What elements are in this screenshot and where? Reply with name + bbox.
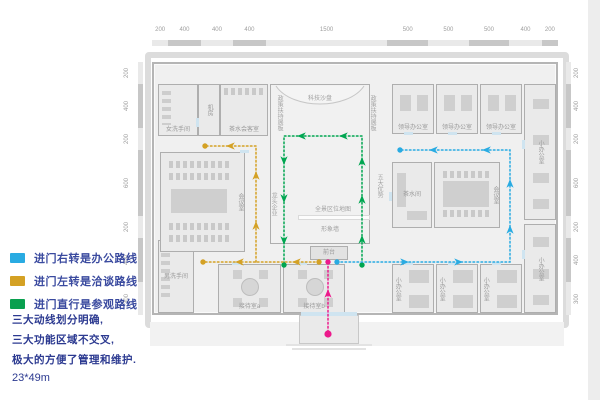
ruler-left-segment [138, 62, 143, 84]
room-label: 茶水会客室 [229, 127, 259, 133]
room-label: 茶水间 [403, 192, 421, 198]
ruler-right-label: 300 [574, 293, 580, 303]
plan-text-policy-board-right: 政策扶持展板 [369, 95, 375, 131]
room-label: 小办公室 [438, 277, 444, 301]
room-meeting-room-left: 会议室 [160, 152, 245, 252]
ruler-top-label: 500 [443, 27, 453, 33]
room-exhibition-hall [270, 84, 370, 244]
room-small-office-strip-bottom: 小办公室 [524, 224, 556, 313]
ruler-top-label: 400 [521, 27, 531, 33]
page-edge-band [588, 0, 600, 400]
room-label: 领导办公室 [442, 125, 472, 131]
ruler-top-label: 200 [545, 27, 555, 33]
plan-text-leading-enterprise-board: 龙头企业 [270, 192, 276, 216]
door-mark [522, 250, 525, 259]
ruler-top-segment [266, 40, 388, 46]
legend-item-negotiation-route: 进门左转是洽谈路线 [10, 269, 138, 292]
ruler-left-segment [138, 282, 143, 315]
furniture-rect [259, 298, 268, 307]
ruler-right-segment [566, 282, 571, 315]
legend-swatch-office-route [10, 253, 25, 263]
furniture-rect [443, 181, 489, 207]
legend-swatch-tour-route [10, 299, 25, 309]
room-women-restroom: 女洗手间 [158, 84, 198, 136]
ruler-top-segment [387, 40, 428, 46]
room-leader-office-3: 领导办公室 [480, 84, 522, 134]
room-label: 领导办公室 [398, 125, 428, 131]
furniture-stripes-h [169, 173, 229, 180]
door-mark [301, 312, 357, 316]
legend: 进门右转是办公路线进门左转是洽谈路线进门直行是参观路线 [10, 246, 138, 315]
ruler-left-label: 200 [124, 68, 130, 78]
plan-text-tech-sandtable-label: 科技沙盘 [308, 96, 332, 102]
plan-text-policy-board-left: 政策扶持展板 [276, 95, 282, 131]
ruler-right-segment [566, 62, 571, 84]
furniture-rect [497, 295, 517, 308]
furniture-rect [417, 95, 428, 111]
wall-band [298, 215, 370, 220]
room-tea-reception-room: 茶水会客室 [220, 84, 268, 136]
room-label: 小办公室 [537, 140, 543, 164]
room-label: 小办公室 [537, 257, 543, 281]
room-label: 会议室 [237, 193, 243, 211]
furniture-rect [259, 270, 268, 279]
door-mark [448, 262, 457, 265]
ruler-right-segment [566, 238, 571, 282]
notes: 三大动线划分明确,三大功能区域不交叉,极大的方便了管理和维护. [12, 310, 136, 370]
legend-swatch-negotiation-route [10, 276, 25, 286]
entrance-vestibule [299, 315, 359, 344]
note-line: 三大功能区域不交叉, [12, 330, 136, 350]
ruler-right-segment [566, 84, 571, 128]
room-label: 小办公室 [482, 277, 488, 301]
furniture-rect [324, 298, 333, 307]
door-mark [196, 118, 199, 127]
ruler-top-label: 500 [484, 27, 494, 33]
room-meeting-room-right: 会议室 [434, 162, 500, 228]
ruler-top-label: 500 [403, 27, 413, 33]
room-small-office-strip-top: 小办公室 [524, 84, 556, 220]
furniture-rect [444, 95, 455, 111]
ruler-right-label: 200 [574, 222, 580, 232]
room-label: 接待室a [239, 304, 260, 310]
ruler-right-segment [566, 216, 571, 238]
note-line: 三大动线划分明确, [12, 310, 136, 330]
furniture-rect [409, 295, 429, 308]
furniture-rect [407, 211, 427, 220]
ruler-left-label: 600 [124, 178, 130, 188]
door-mark [404, 132, 413, 135]
ruler-top-segment [542, 40, 558, 46]
ruler-right-label: 600 [574, 178, 580, 188]
furniture-circle [306, 278, 324, 296]
furniture-rect [233, 270, 242, 279]
furniture-stripes-h [443, 210, 489, 217]
ruler-right-segment [566, 128, 571, 150]
room-leader-office-2: 领导办公室 [436, 84, 478, 134]
door-mark [522, 140, 525, 149]
door-mark [448, 132, 457, 135]
ruler-right-label: 400 [574, 101, 580, 111]
furniture-rect [453, 295, 473, 308]
furniture-rect [533, 237, 549, 247]
room-front-desk: 前台 [310, 246, 348, 260]
room-label: 男洗手间 [164, 273, 188, 279]
room-label: 小办公室 [394, 277, 400, 301]
legend-label: 进门右转是办公路线 [34, 250, 138, 266]
door-mark [298, 262, 307, 265]
furniture-stripes-h [224, 88, 266, 95]
furniture-rect [453, 270, 473, 283]
room-label: 前台 [323, 250, 335, 256]
room-small-office-1: 小办公室 [392, 264, 434, 313]
furniture-stripes-h [169, 161, 229, 168]
ruler-left-label: 200 [124, 134, 130, 144]
furniture-rect [400, 95, 411, 111]
legend-item-office-route: 进门右转是办公路线 [10, 246, 138, 269]
room-leader-office-1: 领导办公室 [392, 84, 434, 134]
furniture-rect [171, 189, 227, 213]
furniture-stripes-v [162, 91, 171, 125]
furniture-rect [397, 173, 406, 207]
door-mark [232, 262, 241, 265]
ruler-left-segment [138, 216, 143, 238]
ruler-top-label: 400 [244, 27, 254, 33]
door-mark [492, 132, 501, 135]
ruler-top-segment [168, 40, 200, 46]
furniture-rect [533, 295, 549, 305]
ruler-right-label: 200 [574, 68, 580, 78]
door-mark [404, 262, 413, 265]
room-reception-room-a: 接待室a [218, 264, 281, 313]
plan-text-five-advantages-board: 五大优势 [376, 174, 382, 198]
room-tea-room-right: 茶水间 [392, 162, 432, 228]
ruler-right-label: 200 [574, 134, 580, 144]
ruler-top-label: 200 [155, 27, 165, 33]
furniture-rect [409, 270, 429, 283]
legend-label: 进门左转是洽谈路线 [34, 273, 138, 289]
room-label: 机房 [206, 104, 212, 116]
furniture-stripes-h [169, 223, 229, 230]
furniture-rect [505, 95, 516, 111]
room-machine-room: 机房 [198, 84, 220, 136]
furniture-rect [533, 99, 549, 109]
furniture-stripes-h [443, 171, 489, 178]
furniture-rect [488, 95, 499, 111]
room-label: 女洗手间 [166, 127, 190, 133]
room-reception-room-b: 接待室b [283, 264, 345, 313]
room-label: 会议室 [492, 186, 498, 204]
floor-plan-infographic: 2004004004001500500500500400200200400200… [0, 0, 600, 400]
overall-dimension-label: 23*49m [12, 372, 50, 384]
ruler-top-segment [428, 40, 469, 46]
ruler-top-label: 400 [179, 27, 189, 33]
door-mark [492, 262, 501, 265]
entrance-step [286, 344, 372, 346]
room-small-office-2: 小办公室 [436, 264, 478, 313]
room-label: 接待室b [303, 304, 324, 310]
door-mark [389, 192, 392, 201]
ruler-top-segment [152, 40, 168, 46]
furniture-rect [497, 270, 517, 283]
ruler-left-segment [138, 84, 143, 128]
furniture-stripes-h [169, 235, 229, 242]
furniture-rect [324, 270, 333, 279]
ruler-top-segment [233, 40, 265, 46]
door-mark [240, 150, 249, 153]
ruler-left-segment [138, 128, 143, 150]
ruler-left-segment [138, 150, 143, 216]
furniture-rect [533, 199, 549, 209]
ruler-left-label: 400 [124, 101, 130, 111]
plan-text-image-wall: 形象墙 [321, 227, 339, 233]
room-label: 领导办公室 [486, 125, 516, 131]
furniture-rect [461, 95, 472, 111]
ruler-right-segment [566, 150, 571, 216]
room-small-office-3: 小办公室 [480, 264, 522, 313]
ruler-right-label: 400 [574, 255, 580, 265]
ruler-top-segment [509, 40, 541, 46]
note-line: 极大的方便了管理和维护. [12, 350, 136, 370]
ruler-top-segment [201, 40, 233, 46]
furniture-rect [298, 270, 307, 279]
ruler-left-label: 200 [124, 222, 130, 232]
furniture-circle [241, 278, 259, 296]
furniture-rect [533, 173, 549, 183]
entrance-step [292, 348, 366, 350]
ruler-top-segment [469, 40, 510, 46]
ruler-top-label: 1500 [320, 27, 333, 33]
ruler-left-segment [138, 238, 143, 282]
ruler-top-label: 400 [212, 27, 222, 33]
plan-text-panorama-map-wall: 全景区位地图 [315, 207, 351, 213]
